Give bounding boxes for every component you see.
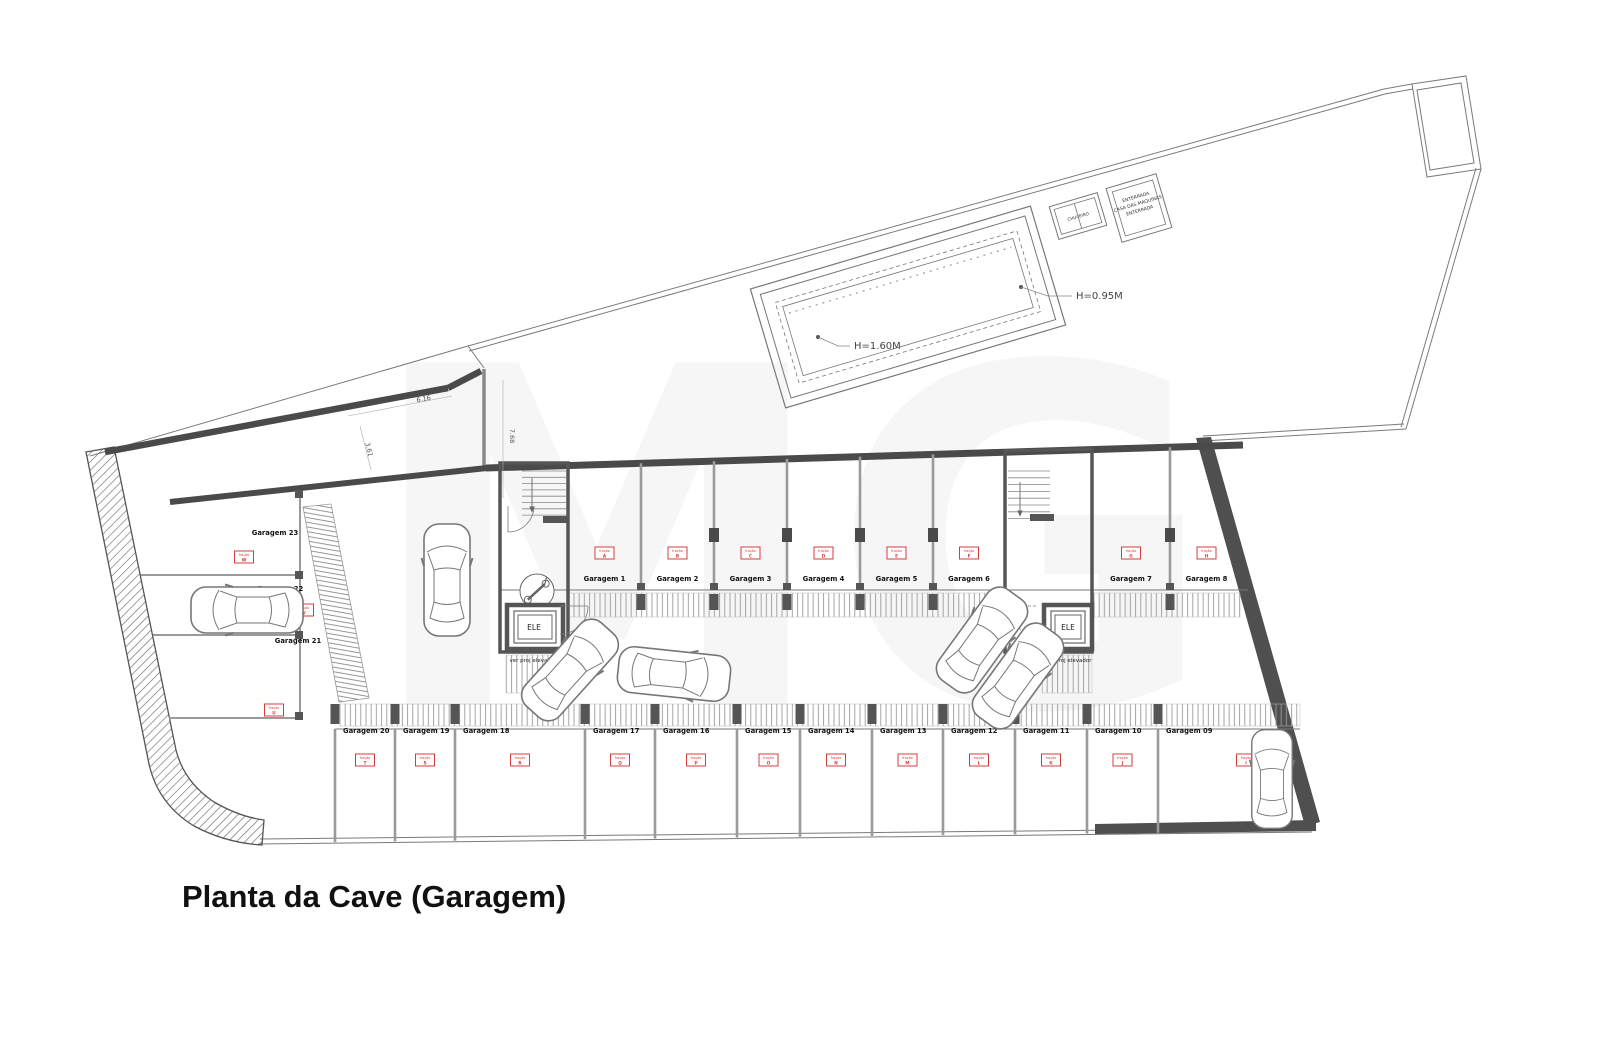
garage-label-16: Garagem 16 [663,727,710,735]
fracao-letter-20: T [364,761,367,766]
fracao-box-20: fraçãoT [356,754,375,766]
fracao-letter-19: S [423,761,426,766]
fracao-letter-5: E [895,554,898,559]
fracao-box-2: fraçãoB [668,547,687,559]
garage-label-10: Garagem 10 [1095,727,1142,735]
fracao-box-13: fraçãoM [898,754,917,766]
garage-label-5: Garagem 5 [876,575,918,583]
fracao-box-23: fraçãoW [235,551,254,563]
fracao-letter-23: W [242,558,247,563]
fracao-box-15: fraçãoO [759,754,778,766]
fracao-letter-12: L [978,761,981,766]
fracao-letter-6: F [968,554,971,559]
fracao-word-18: fração [515,756,526,760]
fracao-letter-8: H [1205,554,1209,559]
shower-room: CHUVEIRO [1049,193,1107,240]
garage-label-6: Garagem 6 [948,575,990,583]
fracao-word-12: fração [974,756,985,760]
garage-label-9: Garagem 09 [1166,727,1213,735]
fracao-box-7: fraçãoG [1122,547,1141,559]
fracao-letter-17: Q [618,761,622,766]
garage-label-15: Garagem 15 [745,727,792,735]
fracao-word-11: fração [1046,756,1057,760]
fracao-letter-14: N [834,761,838,766]
fracao-letter-3: C [749,554,752,559]
fracao-letter-15: O [767,761,771,766]
fracao-box-4: fraçãoD [814,547,833,559]
fracao-word-14: fração [831,756,842,760]
fracao-box-1: fraçãoA [595,547,614,559]
fracao-word-17: fração [615,756,626,760]
fracao-box-11: fraçãoK [1042,754,1061,766]
fracao-word-3: fração [745,549,756,553]
fracao-word-9: fração [1241,756,1252,760]
garage-label-7: Garagem 7 [1110,575,1152,583]
fracao-word-4: fração [818,549,829,553]
fracao-word-1: fração [599,549,610,553]
pool-depth-deep-label: H=1.60M [854,341,901,352]
fracao-box-17: fraçãoQ [611,754,630,766]
fracao-word-5: fração [891,549,902,553]
garage-label-23: Garagem 23 [252,529,299,537]
fracao-word-16: fração [691,756,702,760]
fracao-box-8: fraçãoH [1197,547,1216,559]
garage-label-18: Garagem 18 [463,727,510,735]
fracao-word-8: fração [1201,549,1212,553]
fracao-word-19: fração [420,756,431,760]
pool-depth-shallow-label: H=0.95M [1076,291,1123,302]
fracao-box-18: fraçãoR [511,754,530,766]
fracao-box-14: fraçãoN [827,754,846,766]
car-aisle-1 [422,524,473,636]
garage-label-11: Garagem 11 [1023,727,1070,735]
fracao-letter-7: G [1129,554,1133,559]
fracao-letter-16: P [694,761,697,766]
garage-label-4: Garagem 4 [803,575,845,583]
floor-plan-page: MG H=0.95M H=1.60M [0,0,1600,1062]
page-title: Planta da Cave (Garagem) [182,879,566,914]
car-garagem-09 [1250,730,1295,829]
fracao-letter-21: U [272,711,276,716]
shower-room-label: CHUVEIRO [1067,211,1090,222]
dimension-side: 7.68 [508,429,516,443]
fracao-box-6: fraçãoF [960,547,979,559]
fracao-box-10: fraçãoJ [1113,754,1132,766]
fracao-letter-4: D [822,554,826,559]
boundary-bump-room [1412,76,1481,177]
fracao-box-5: fraçãoE [887,547,906,559]
fracao-letter-10: J [1121,761,1124,766]
fracao-word-20: fração [360,756,371,760]
fracao-word-21: fração [269,706,280,710]
elevator-label-right: ELE [1061,623,1075,632]
fracao-word-15: fração [763,756,774,760]
fracao-word-2: fração [672,549,683,553]
fracao-letter-13: M [905,761,909,766]
fracao-word-7: fração [1126,549,1137,553]
garage-label-13: Garagem 13 [880,727,927,735]
fracao-word-13: fração [902,756,913,760]
fracao-box-19: fraçãoS [416,754,435,766]
fracao-box-3: fraçãoC [741,547,760,559]
garage-label-21: Garagem 21 [275,637,322,645]
fracao-word-23: fração [239,553,250,557]
garage-label-14: Garagem 14 [808,727,855,735]
fracao-letter-2: B [676,554,679,559]
garage-label-2: Garagem 2 [657,575,699,583]
ramp [303,504,369,702]
garage-label-20: Garagem 20 [343,727,390,735]
left-retaining-wall [86,447,264,845]
garage-label-12: Garagem 12 [951,727,998,735]
fracao-word-10: fração [1117,756,1128,760]
garage-label-17: Garagem 17 [593,727,640,735]
garage-label-1: Garagem 1 [584,575,626,583]
car-garagem-22 [191,585,303,636]
elevator-label-left: ELE [527,623,541,632]
fracao-box-16: fraçãoP [687,754,706,766]
garage-label-19: Garagem 19 [403,727,450,735]
fracao-word-6: fração [964,549,975,553]
garage-label-3: Garagem 3 [730,575,772,583]
fracao-box-21: fraçãoU [265,704,284,716]
machine-room: ENTERRADA CASA DAS MAQUINAS ENTERRADA [1106,174,1172,242]
floor-plan-drawing: MG H=0.95M H=1.60M [0,0,1600,1062]
garage-label-8: Garagem 8 [1186,575,1228,583]
fracao-box-12: fraçãoL [970,754,989,766]
